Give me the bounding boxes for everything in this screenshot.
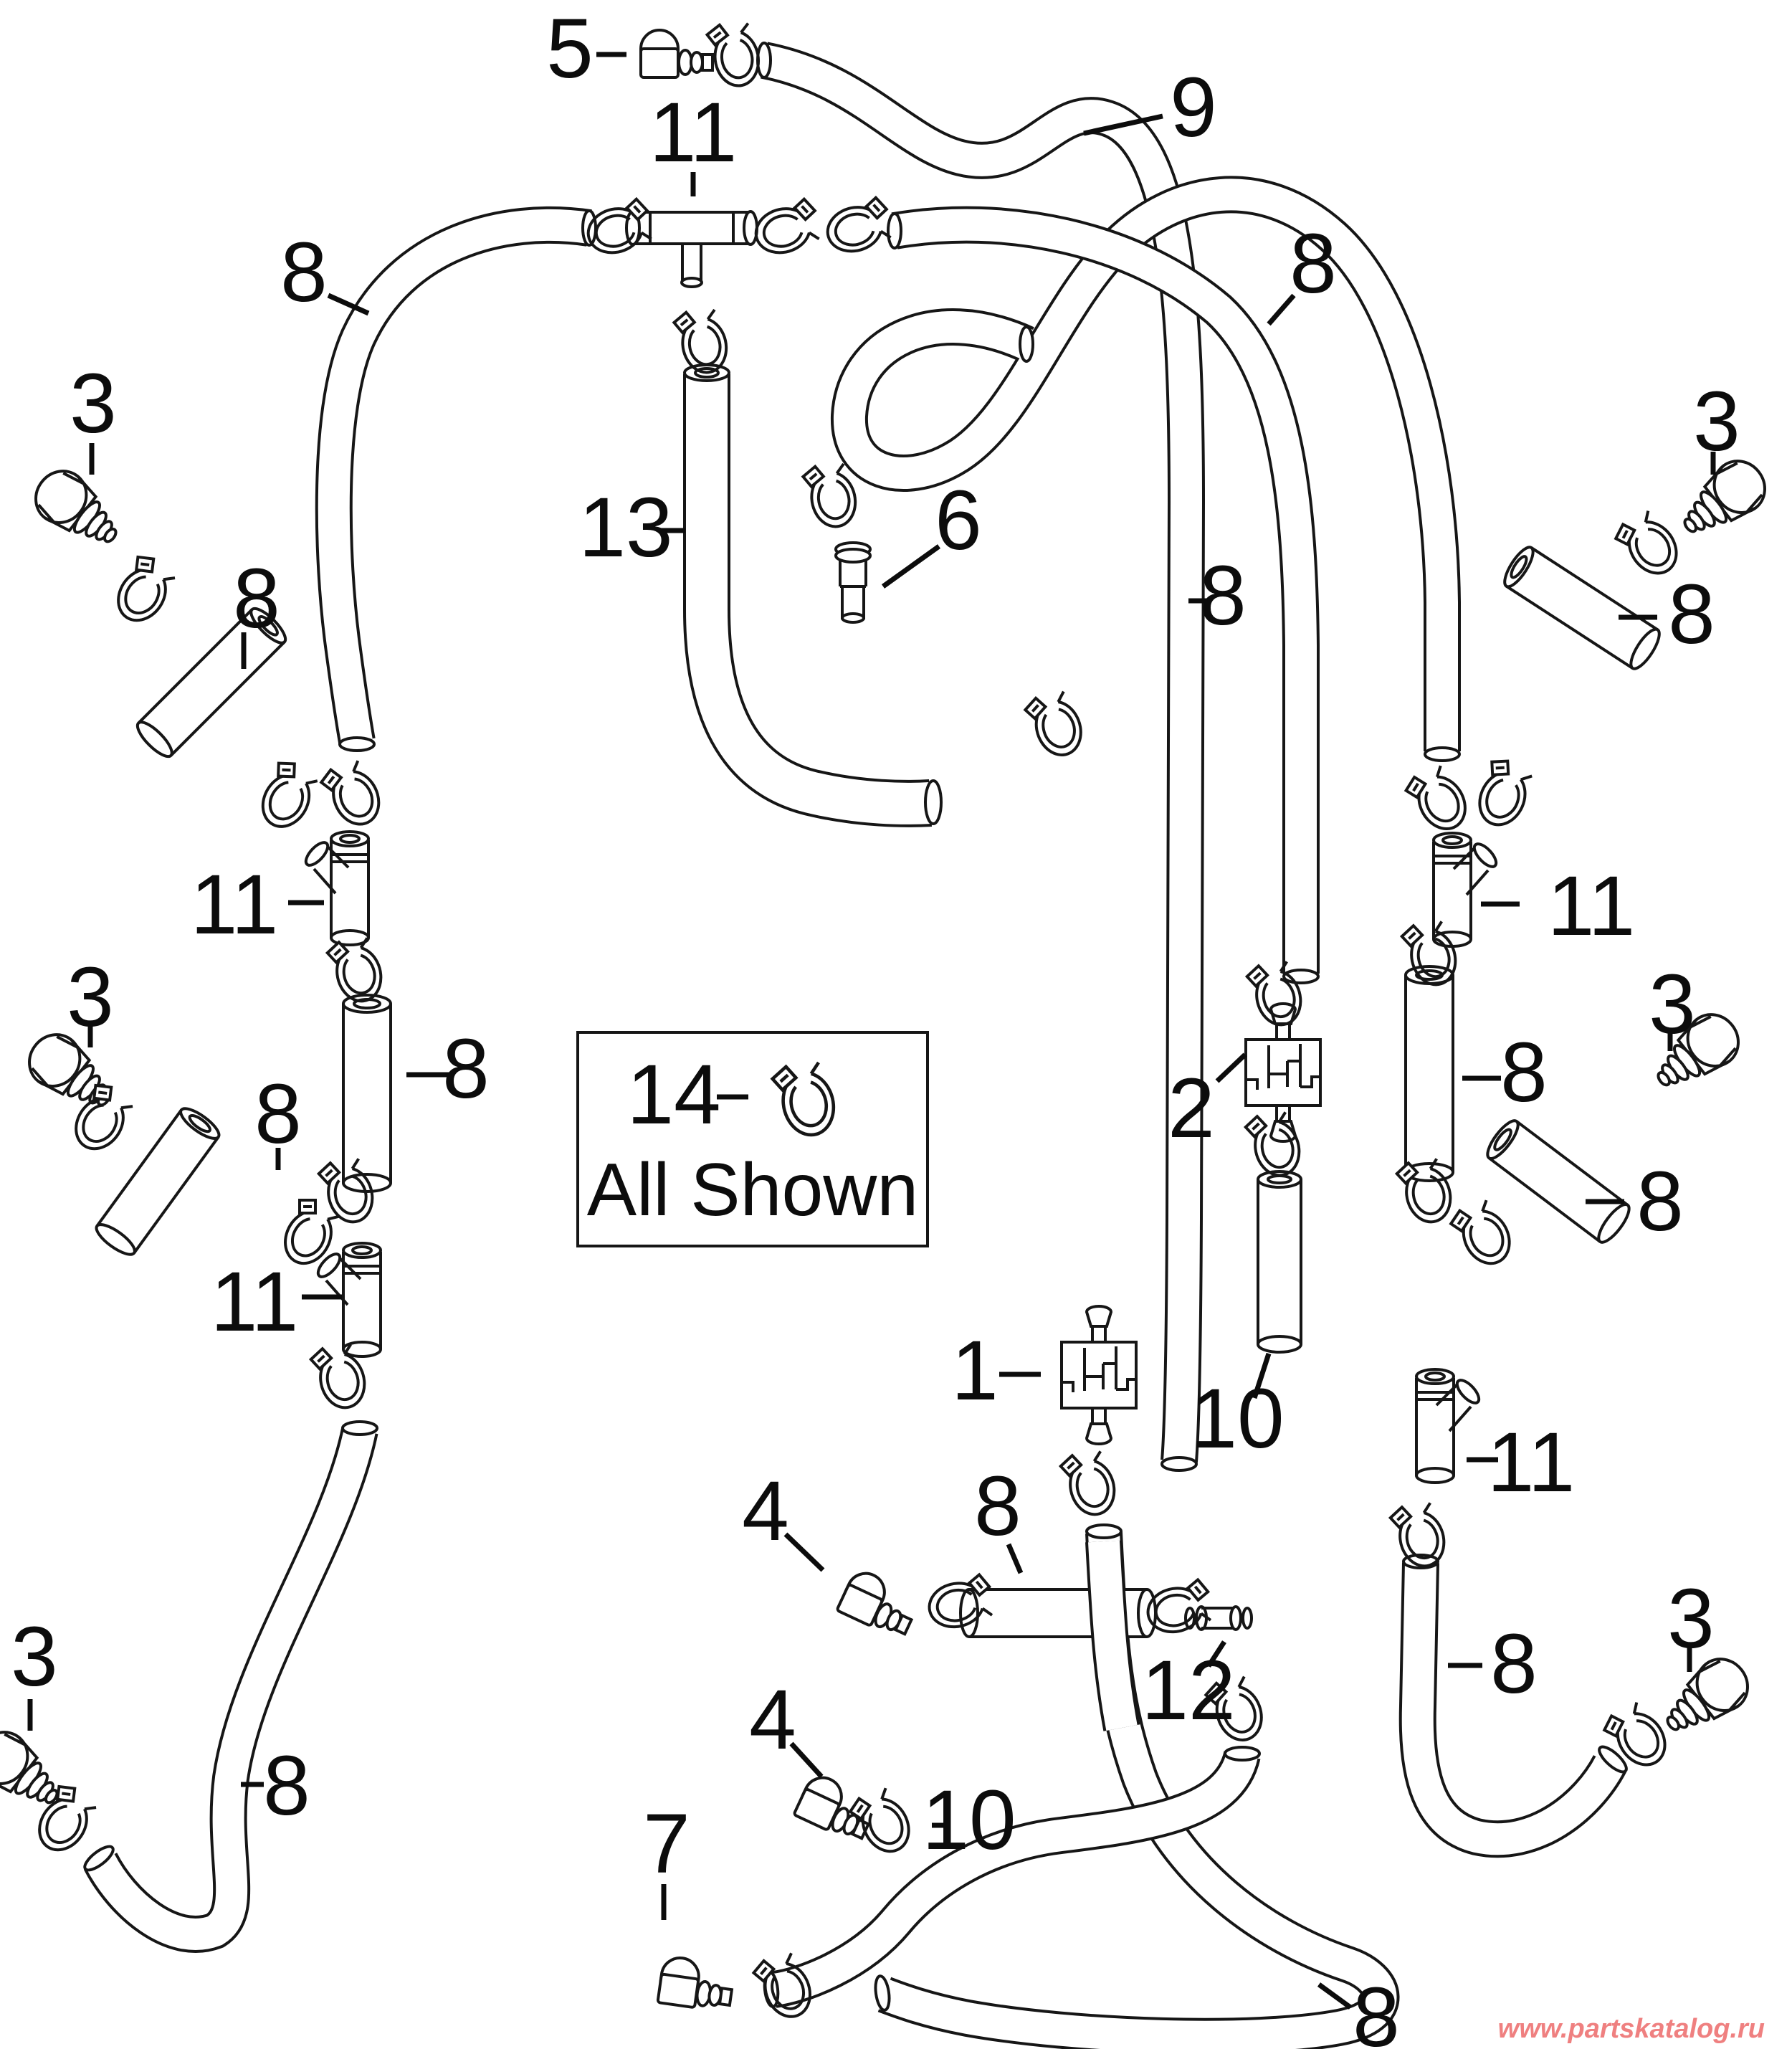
callout-4: 4 [749, 1673, 796, 1767]
legend-note: All Shown [587, 1149, 918, 1232]
callout-2: 2 [1168, 1061, 1215, 1156]
callout-8: 8 [1290, 217, 1337, 311]
elbow-fitting-5 [641, 30, 712, 77]
fuel-connector-3-bottom-left [0, 1722, 71, 1820]
callout-8: 8 [280, 225, 328, 320]
y-fitting-11-bottom-left [315, 1243, 381, 1356]
hose-clamp-icon [1468, 755, 1537, 832]
callout-7: 7 [643, 1797, 690, 1891]
hose-clamp-icon [1244, 1108, 1305, 1181]
callout-10: 10 [922, 1773, 1016, 1868]
callout-13: 13 [578, 480, 672, 575]
y-fitting-11-top-right [1434, 833, 1500, 946]
tube-8-left-vertical [343, 995, 391, 1192]
callout-11: 11 [191, 857, 279, 952]
tube-8-right-vertical [1406, 966, 1453, 1181]
callout-3: 3 [1649, 957, 1696, 1052]
hose-clamp-icon [106, 551, 181, 629]
callout-10: 10 [1190, 1371, 1284, 1466]
tube-8-right-upper [1500, 543, 1664, 672]
legend-number: 14 [626, 1047, 720, 1142]
callout-3: 3 [1693, 374, 1740, 469]
callout-11: 11 [1548, 859, 1636, 954]
hose-clamp-icon [251, 757, 323, 835]
callout-12: 12 [1141, 1643, 1235, 1738]
hose-clamp-icon [318, 756, 387, 833]
callout-8: 8 [1668, 567, 1715, 662]
watermark: www.partskatalog.ru [1498, 2014, 1765, 2044]
callout-5: 5 [546, 1, 594, 96]
callout-8: 8 [1636, 1154, 1684, 1249]
hose-clamp-icon [750, 197, 823, 258]
callout-4: 4 [742, 1464, 789, 1559]
callout-8: 8 [974, 1459, 1021, 1554]
callout-leader-8 [1319, 1984, 1350, 2007]
callout-1: 1 [951, 1323, 999, 1418]
hose-clamp-icon [1023, 687, 1088, 762]
callout-6: 6 [935, 473, 982, 568]
hose-13 [685, 365, 941, 824]
callout-8: 8 [1500, 1025, 1548, 1120]
callout-3: 3 [1667, 1572, 1715, 1666]
callout-11: 11 [1487, 1415, 1576, 1510]
t-fitting-11-top [626, 211, 757, 287]
hose-8-bottom-overlap [1104, 1541, 1122, 1728]
callout-11: 11 [211, 1255, 299, 1349]
fuel-connector-3-top-left [26, 461, 130, 559]
parts-diagram: 5119883313688888111133288110111148124103… [0, 0, 1792, 2049]
elbow-fitting-7 [657, 1956, 735, 2012]
vent-fitting-6 [836, 543, 870, 622]
y-fitting-11-bottom-right [1416, 1369, 1482, 1483]
callout-9: 9 [1170, 60, 1217, 155]
callout-8: 8 [263, 1739, 310, 1833]
hose-clamp-icon [1059, 1447, 1120, 1520]
elbow-fitting-4-upper [837, 1567, 922, 1640]
callout-3: 3 [70, 356, 117, 451]
hose-clamp-icon [821, 196, 895, 257]
parts-diagram-page: 5119883313688888111133288110111148124103… [0, 0, 1792, 2049]
callout-3: 3 [67, 950, 114, 1045]
callout-8: 8 [1199, 548, 1247, 643]
y-fitting-11-top-left [302, 832, 368, 945]
callout-8: 8 [233, 551, 280, 646]
tube-10-upper [1258, 1171, 1301, 1352]
mender-fitting-12 [1186, 1607, 1252, 1630]
callout-8: 8 [254, 1067, 302, 1161]
callout-leader-6 [883, 546, 939, 586]
tube-8-left-mid [92, 1103, 223, 1259]
check-valve-1 [1062, 1306, 1136, 1444]
callout-8: 8 [1490, 1617, 1538, 1711]
callout-8: 8 [1353, 1970, 1400, 2049]
callout-leader-4 [786, 1534, 823, 1570]
hose-8-bottom-left [82, 1422, 377, 1934]
hose-clamp-icon [1402, 761, 1474, 839]
callout-layer: 5119883313688888111133288110111148124103… [11, 1, 1740, 2049]
callout-11: 11 [649, 85, 738, 180]
callout-leader-2 [1217, 1055, 1245, 1081]
callout-3: 3 [11, 1610, 58, 1704]
hose-clamp-icon [706, 19, 763, 90]
callout-8: 8 [442, 1022, 490, 1116]
hose-clamp-icon [1447, 1195, 1518, 1273]
hose-8-top-left [334, 211, 596, 751]
